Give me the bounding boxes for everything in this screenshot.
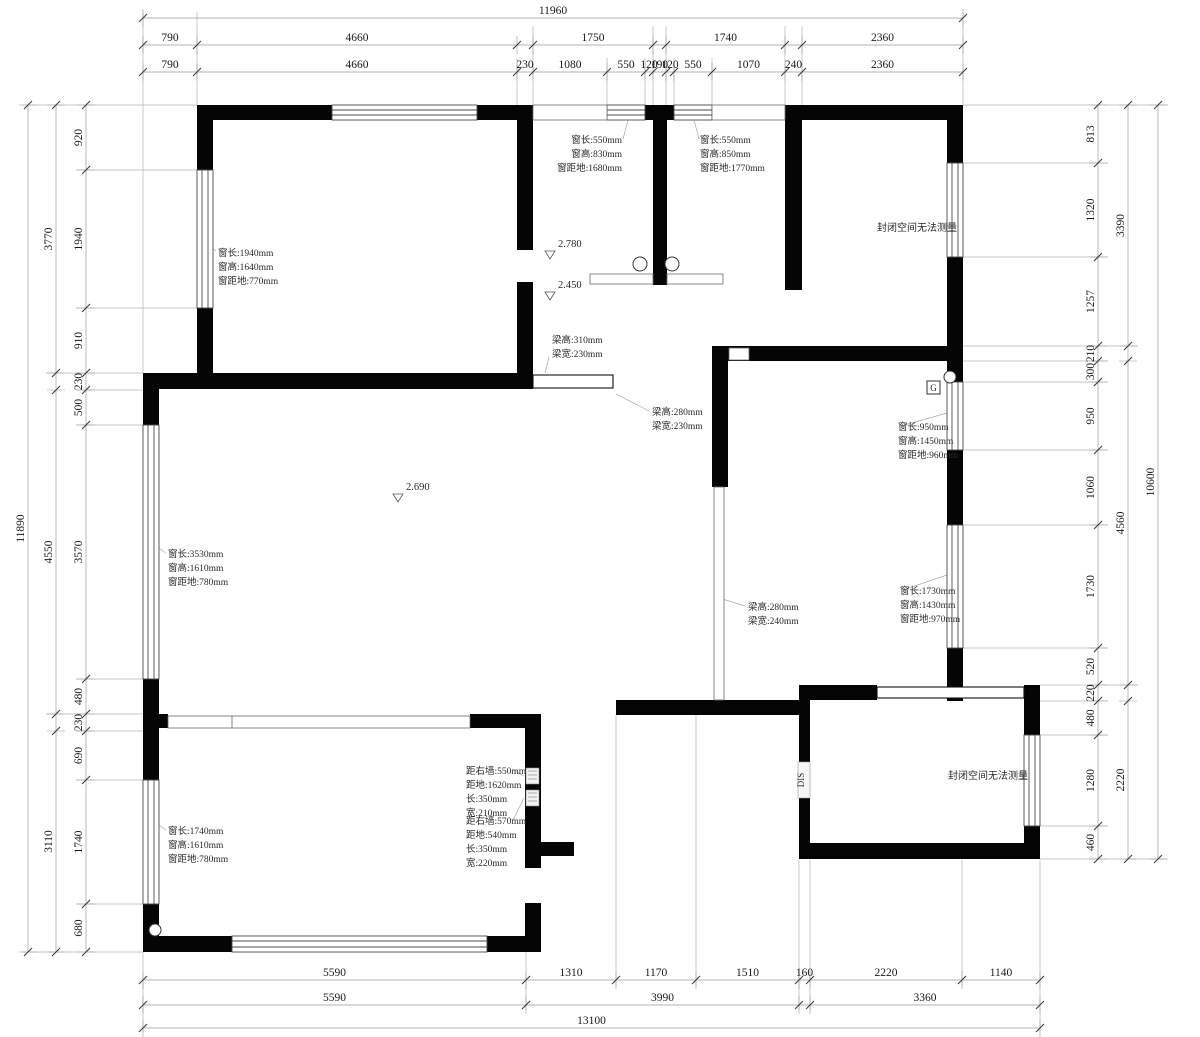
annotation-line: 窗高:1610mm <box>168 839 224 851</box>
level-living: 2.690 <box>393 482 430 502</box>
annotation-line: 梁宽:240mm <box>748 615 799 627</box>
dim-label: 790 <box>161 32 179 44</box>
annotation-line: 窗高:1450mm <box>898 435 954 447</box>
column-outline <box>729 348 749 360</box>
g-marker-label: G <box>930 383 937 393</box>
dim-label: 3570 <box>73 540 85 563</box>
dis-marker: DIS <box>796 762 810 798</box>
dim-label: 950 <box>1085 407 1097 425</box>
dim-label: 813 <box>1085 125 1097 143</box>
text-annotations: 窗长:1940mm窗高:1640mm窗距地:770mm窗长:550mm窗高:83… <box>168 134 1028 869</box>
drain-circle-icon <box>633 257 647 271</box>
dim-label: 1070 <box>737 59 760 71</box>
dim-label: 1170 <box>645 967 668 979</box>
dim-label: 3990 <box>651 992 674 1004</box>
annotation-line: 距地:540mm <box>466 829 517 841</box>
annotation-line: 窗长:1740mm <box>168 825 224 837</box>
level-value: 2.690 <box>406 482 430 493</box>
dim-label: 1940 <box>73 227 85 250</box>
bath-partition <box>590 274 653 284</box>
annotation-line: 窗长:1940mm <box>218 247 274 259</box>
dim-label: 2220 <box>875 967 898 979</box>
dim-label: 120 <box>661 59 679 71</box>
annotation-window-top-left-room: 窗长:1940mm窗高:1640mm窗距地:770mm <box>218 247 279 287</box>
electrical-box-icon <box>526 768 539 784</box>
electrical-box-icon <box>526 790 539 806</box>
annotation-line: 窗高:1430mm <box>900 599 956 611</box>
annotation-beam-2: 梁高:280mm梁宽:230mm <box>652 406 703 432</box>
annotation-line: 窗高:830mm <box>571 148 622 160</box>
wall-segment <box>143 373 533 389</box>
wall-segment <box>712 346 728 487</box>
dim-label: 920 <box>73 129 85 147</box>
dim-label: 300 <box>1085 363 1097 381</box>
level-triangle-icon <box>545 251 555 259</box>
dim-label: 13100 <box>577 1015 606 1027</box>
annotation-line: 窗距地:780mm <box>168 853 229 865</box>
wall-segment <box>143 731 159 780</box>
annotation-line: 长:350mm <box>466 793 508 805</box>
dim-chain-bottom-row2: 559039903360 <box>139 992 1044 1014</box>
annotation-line: 窗距地:1680mm <box>557 162 623 174</box>
dim-label: 1060 <box>1085 476 1097 499</box>
dim-label: 1730 <box>1085 575 1097 598</box>
level-bath: 2.780 <box>545 239 582 259</box>
dim-label: 1750 <box>582 32 605 44</box>
wall-segment <box>653 105 667 285</box>
annotation-line: 窗长:550mm <box>700 134 751 146</box>
wall-segment <box>799 843 1040 859</box>
dim-label: 1740 <box>73 830 85 853</box>
dim-label: 5590 <box>323 967 346 979</box>
wall-segment <box>143 936 232 952</box>
dim-label: 220 <box>1085 684 1097 702</box>
annotation-beam-3: 梁高:280mm梁宽:240mm <box>748 601 799 627</box>
wall-segment <box>799 685 877 700</box>
dim-chain-left-mid: 377045503110 <box>43 101 65 956</box>
window-icon <box>332 105 477 120</box>
dim-chain-right-mid: 339045602220 <box>1115 101 1137 863</box>
dim-label: 480 <box>1085 709 1097 727</box>
floor-plan-canvas: G DIS 1196079046601750174023607904660230… <box>0 0 1200 1037</box>
wall-segment <box>143 373 159 425</box>
annotation-note-sealed-bottom-right: 封闭空间无法测量 <box>948 769 1028 782</box>
beam-outline <box>533 375 613 388</box>
annotation-beam-1: 梁高:310mm梁宽:230mm <box>552 334 603 360</box>
level-value: 2.450 <box>558 280 582 291</box>
wall-segment <box>143 714 168 728</box>
level-marks: 2.7802.4502.690 <box>393 239 582 502</box>
wall-segment <box>785 105 802 290</box>
annotation-line: 窗距地:1770mm <box>700 162 766 174</box>
annotation-measure-box-2: 距右墙:570mm距地:540mm长:350mm宽:220mm <box>466 815 527 869</box>
annotation-line: 窗长:3530mm <box>168 548 224 560</box>
annotation-window-right-room-2: 窗长:1730mm窗高:1430mm窗距地:970mm <box>900 585 961 625</box>
wall-segment <box>947 450 963 525</box>
partition-band <box>168 716 470 728</box>
dim-label: 500 <box>73 399 85 417</box>
dim-label: 4550 <box>43 540 55 563</box>
dim-label: 550 <box>617 59 635 71</box>
dim-label: 4660 <box>346 59 369 71</box>
dim-label: 210 <box>1085 345 1097 363</box>
dim-label: 4560 <box>1115 511 1127 534</box>
dim-label: 460 <box>1085 834 1097 852</box>
annotation-line: 梁宽:230mm <box>552 348 603 360</box>
dim-label: 3390 <box>1115 214 1127 237</box>
wall-segment <box>541 842 574 856</box>
g-marker: G <box>927 381 940 394</box>
annotation-line: 封闭空间无法测量 <box>948 769 1028 782</box>
annotation-line: 距右墙:550mm <box>466 765 527 777</box>
wall-segment <box>1024 685 1040 735</box>
dim-label: 1310 <box>560 967 583 979</box>
dim-chain-bottom-row1: 559013101170151016022201140 <box>139 967 1044 989</box>
dim-label: 240 <box>785 59 803 71</box>
level-value: 2.780 <box>558 239 582 250</box>
annotation-line: 梁高:310mm <box>552 334 603 346</box>
dim-label: 2360 <box>871 32 894 44</box>
drain-circle-icon <box>944 371 956 383</box>
dim-label: 230 <box>516 59 534 71</box>
floor-plan-drawing: G DIS 1196079046601750174023607904660230… <box>0 0 1200 1037</box>
level-triangle-icon <box>393 494 403 502</box>
annotation-line: 长:350mm <box>466 843 508 855</box>
dim-label: 910 <box>73 332 85 350</box>
dim-chain-bottom-row3: 13100 <box>139 1015 1044 1037</box>
annotation-line: 梁高:280mm <box>748 601 799 613</box>
window-icon <box>674 105 712 120</box>
dim-label: 230 <box>73 373 85 391</box>
wall-segment <box>517 105 533 250</box>
dim-label: 690 <box>73 747 85 765</box>
beam-outline <box>877 687 1024 698</box>
annotation-line: 封闭空间无法测量 <box>877 221 957 234</box>
window-icon <box>607 105 645 120</box>
dim-label: 11890 <box>15 514 27 543</box>
dim-chain-left-outer: 11890 <box>15 101 37 956</box>
annotation-line: 窗距地:770mm <box>218 275 279 287</box>
window-icon <box>947 163 963 257</box>
dim-label: 3360 <box>914 992 937 1004</box>
wall-segment <box>197 105 213 170</box>
dim-label: 1280 <box>1085 769 1097 792</box>
window-icon <box>197 170 213 308</box>
wall-segment <box>616 700 696 715</box>
annotation-line: 窗距地:960mm <box>898 449 959 461</box>
dim-label: 480 <box>73 688 85 706</box>
annotation-window-bottom-left-room: 窗长:1740mm窗高:1610mm窗距地:780mm <box>168 825 229 865</box>
dim-chain-top-row1: 11960 <box>139 5 967 27</box>
wall-segment <box>802 105 963 120</box>
annotation-line: 窗距地:780mm <box>168 576 229 588</box>
dim-label: 2360 <box>871 59 894 71</box>
dim-label: 1510 <box>736 967 759 979</box>
dim-label: 790 <box>161 59 179 71</box>
drain-circle-icon <box>149 924 161 936</box>
wall-segment <box>947 105 963 163</box>
dim-label: 520 <box>1085 658 1097 676</box>
bath-partition <box>667 274 723 284</box>
dim-label: 2220 <box>1115 768 1127 791</box>
dim-chain-top-row2: 7904660175017402360 <box>139 32 967 54</box>
annotation-line: 窗长:1730mm <box>900 585 956 597</box>
dim-label: 160 <box>796 967 814 979</box>
wall-segment <box>696 700 799 715</box>
annotation-line: 距地:1620mm <box>466 779 522 791</box>
dim-label: 10600 <box>1145 467 1157 496</box>
dim-chain-right-outer: 10600 <box>1145 101 1167 863</box>
drain-circle-icon <box>665 257 679 271</box>
dim-chain-right-inner: 8131320125721030095010601730520220480128… <box>1085 101 1107 863</box>
annotation-note-sealed-top-right: 封闭空间无法测量 <box>877 221 957 234</box>
level-bath-low: 2.450 <box>545 280 582 300</box>
wall-segment <box>947 257 963 346</box>
annotation-window-living-left: 窗长:3530mm窗高:1610mm窗距地:780mm <box>168 548 229 588</box>
annotation-line: 窗高:850mm <box>700 148 751 160</box>
dim-label: 230 <box>73 714 85 732</box>
annotation-line: 窗距地:970mm <box>900 613 961 625</box>
annotation-window-bath-right: 窗长:550mm窗高:850mm窗距地:1770mm <box>700 134 766 174</box>
level-triangle-icon <box>545 292 555 300</box>
glass-partition <box>714 487 724 700</box>
dim-label: 1740 <box>714 32 737 44</box>
opening-band <box>533 105 607 120</box>
dis-marker-label: DIS <box>796 773 806 788</box>
dim-label: 680 <box>73 919 85 937</box>
wall-segment <box>712 346 963 361</box>
annotation-window-bath-left: 窗长:550mm窗高:830mm窗距地:1680mm <box>557 134 623 174</box>
wall-segment <box>525 903 541 952</box>
annotation-line: 梁宽:230mm <box>652 420 703 432</box>
dim-label: 4660 <box>346 32 369 44</box>
dim-label: 550 <box>684 59 702 71</box>
dim-label: 5590 <box>323 992 346 1004</box>
wall-segment <box>197 105 332 120</box>
dim-label: 1080 <box>559 59 582 71</box>
window-icon <box>143 780 159 904</box>
dim-chain-top-row3: 7904660230108055012019012055010702402360 <box>139 59 967 81</box>
dim-label: 3110 <box>43 830 55 853</box>
window-icon <box>232 936 487 952</box>
dim-label: 1140 <box>990 967 1013 979</box>
annotation-line: 窗长:950mm <box>898 421 949 433</box>
wall-segment <box>517 282 533 389</box>
annotation-line: 距右墙:570mm <box>466 815 527 827</box>
annotation-line: 梁高:280mm <box>652 406 703 418</box>
annotation-line: 窗高:1610mm <box>168 562 224 574</box>
opening-band <box>712 105 785 120</box>
window-icon <box>143 425 159 679</box>
dim-label: 3770 <box>43 227 55 250</box>
annotation-line: 窗高:1640mm <box>218 261 274 273</box>
dim-chain-left-inner: 920194091023050035704802306901740680 <box>73 101 95 956</box>
dim-label: 1320 <box>1085 198 1097 221</box>
dim-label: 1257 <box>1085 290 1097 313</box>
annotation-line: 宽:220mm <box>466 857 508 869</box>
annotation-line: 窗长:550mm <box>571 134 622 146</box>
dim-label: 11960 <box>539 5 568 17</box>
